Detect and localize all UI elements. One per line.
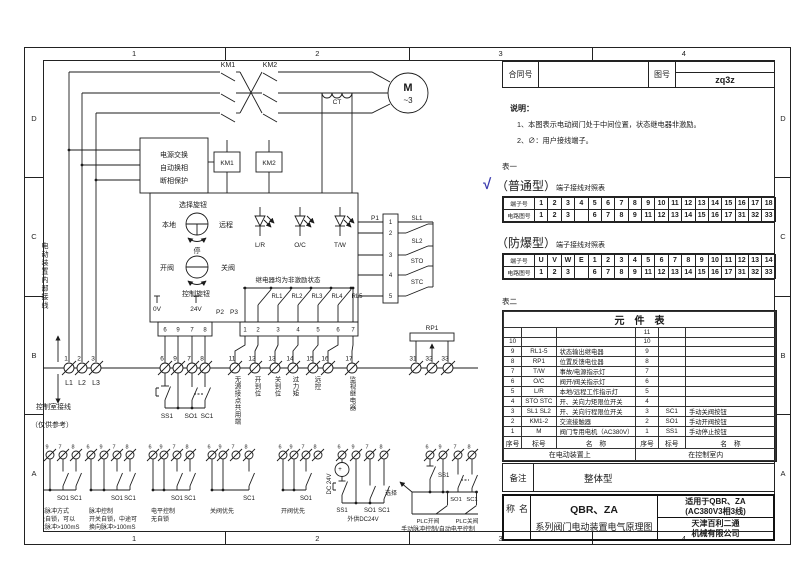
terminal: 16 (321, 356, 335, 376)
term-cell: 7 (601, 210, 614, 222)
schematic-label: 7 (301, 445, 304, 451)
km1-coil-label: KM1 (220, 160, 234, 167)
schematic-label: 1 (64, 356, 68, 363)
schematic-label: 32 (425, 356, 433, 363)
schematic-label: 6 (163, 328, 167, 334)
component-header-cell: 名 称 (556, 437, 636, 449)
term-cell: 15 (695, 210, 708, 222)
terminal: 7 (171, 445, 183, 462)
terminal: 6 (206, 445, 218, 462)
schematic-label: SO1 (300, 496, 313, 502)
term-row-label: 电路图号 (504, 210, 535, 222)
schematic-label: 9 (289, 445, 292, 451)
selector-knob-title: 选择旋钮 (179, 200, 207, 209)
schematic-label: 7 (112, 445, 115, 451)
drawing-no-label: 图号 (649, 62, 676, 87)
term-cell: 6 (601, 198, 614, 210)
component-header-cell: 序号 (636, 437, 658, 449)
schematic-label: SL1 (411, 215, 423, 222)
terminal: 8 (70, 445, 82, 462)
terminal: 9 (437, 445, 449, 462)
component-row: 11 (504, 328, 776, 338)
zone-label: A (25, 414, 43, 532)
drawing-no-blank (676, 62, 774, 73)
term-cell: 6 (655, 255, 668, 267)
name-label: 名称 (504, 496, 531, 539)
component-cell: 本地/远程工作指示灯 (556, 387, 636, 397)
schematic-label: 6 (86, 445, 89, 451)
schematic-label: 7 (172, 445, 175, 451)
schematic-label: 脉冲控制 (89, 507, 113, 515)
term-cell: 10 (708, 255, 721, 267)
term-cell: 1 (588, 255, 601, 267)
term-cell: 12 (735, 255, 748, 267)
component-cell: 6 (636, 377, 658, 387)
zero-volt-label: 0V (153, 306, 162, 313)
normal-type-subtitle: 端子接线对照表 (556, 185, 605, 192)
schematic-label: 7 (231, 445, 234, 451)
term-cell: E (575, 255, 588, 267)
term-cell: 14 (762, 255, 776, 267)
zone-label: C (775, 177, 791, 295)
schematic-label: 8 (185, 445, 188, 451)
schematic-label: 13 (268, 356, 276, 363)
schematic-label: 1 (389, 220, 393, 226)
contract-table: 合同号 图号 zq3z (502, 61, 775, 88)
schematic-label: + (338, 467, 342, 473)
term-cell: 11 (642, 267, 655, 279)
term-cell: 15 (722, 198, 735, 210)
term-cell: 12 (682, 198, 695, 210)
schematic-label: 开阀优先 (281, 507, 305, 515)
schematic-label: 开关自锁，可以 (43, 515, 75, 523)
schematic-label: SL2 (411, 238, 423, 245)
drawing-no-value: zq3z (676, 73, 774, 87)
table2-label: 表二 (502, 296, 517, 307)
schematic-label: SO1 (450, 497, 462, 503)
reference-only-label: （仅供参考） (31, 420, 73, 430)
component-cell: STO STC (522, 397, 556, 407)
component-cell (685, 337, 775, 347)
footer-left: 在电动装置上 (504, 449, 636, 461)
schematic-label: L1 (65, 380, 73, 387)
term-cell: 32 (749, 210, 762, 222)
relay-note: 继电器均为非激励状态 (256, 275, 322, 284)
component-cell (685, 387, 775, 397)
component-cell: 1 (636, 427, 658, 437)
schematic-label: 3 (276, 328, 280, 334)
power-box-line1: 电源交换 (160, 150, 188, 159)
schematic-label: RL2 (291, 294, 303, 300)
note-2: 2、∅：用户接线端子。 (517, 136, 772, 146)
term-cell: 16 (735, 198, 748, 210)
schematic-label: 7 (187, 356, 191, 363)
schematic-label: 外供DC24V (347, 515, 378, 523)
schematic-label: PLC关阀 (456, 517, 479, 525)
term-cell: 9 (642, 198, 655, 210)
zone-label: B (775, 296, 791, 414)
term-cell: 32 (749, 267, 762, 279)
term-cell: 1 (535, 210, 548, 222)
term-cell: 8 (682, 255, 695, 267)
term-cell: 15 (695, 267, 708, 279)
component-row: 5L/R本地/远程工作指示灯5 (504, 387, 776, 397)
term-cell: 1 (535, 267, 548, 279)
schematic-label: 16 (321, 356, 329, 363)
term-row-label: 端子号 (504, 198, 535, 210)
schematic-label: 7 (453, 445, 456, 451)
term-cell: W (561, 255, 574, 267)
component-cell: 手动停止按钮 (685, 427, 775, 437)
dc24v-label: DC 24V (327, 473, 333, 494)
term-cell: 12 (655, 210, 668, 222)
component-cell: 5 (636, 387, 658, 397)
component-table: 元 件 表1110109RL1-5状态输出继电器98RP1位置反馈电位器87T/… (502, 310, 777, 462)
term-cell: 13 (668, 267, 681, 279)
component-cell: 位置反馈电位器 (556, 357, 636, 367)
component-cell: 事故/电源指示灯 (556, 367, 636, 377)
component-header-cell: 名 称 (685, 437, 775, 449)
remote-label: 远程 (219, 220, 233, 229)
normal-terminal-table: 端子号123456789101112131415161718电路图号123678… (502, 196, 775, 223)
schematic-label: SS1 (336, 508, 348, 514)
notes-title: 说明： (510, 103, 772, 114)
term-cell: 10 (655, 198, 668, 210)
component-cell (658, 377, 685, 387)
component-cell: 9 (636, 347, 658, 357)
term-row-label: 端子号 (504, 255, 535, 267)
schematic-label: SO1 (364, 508, 377, 514)
company-line1: 天津百利二通 (692, 519, 740, 529)
schematic-label: RL5 (351, 294, 363, 300)
terminal: 33 (441, 356, 455, 376)
schematic-label: 换向脉冲>100mS (89, 523, 136, 531)
component-table-title: 元 件 表 (504, 312, 776, 328)
schematic-label: 9 (99, 445, 102, 451)
term-cell: 4 (575, 198, 588, 210)
schematic-label: 8 (203, 328, 207, 334)
schematic-label: 33 (441, 356, 449, 363)
schematic-label: SO1 (111, 496, 124, 502)
schematic-label: SC1 (70, 496, 82, 502)
term-cell: 11 (722, 255, 735, 267)
normal-type-title: （普通型） (496, 179, 556, 193)
schematic-label: 8 (313, 445, 316, 451)
schematic-label: RL3 (311, 294, 323, 300)
remark-row: 备注 整体型 (502, 463, 775, 492)
term-cell: 4 (628, 255, 641, 267)
schematic-label: 7 (351, 328, 355, 334)
schematic-label: 9 (45, 445, 48, 451)
schematic-label: 2 (389, 231, 393, 237)
component-cell: 8 (636, 357, 658, 367)
component-cell (658, 328, 685, 338)
component-cell: 3 (504, 407, 522, 417)
terminal: 31 (409, 356, 423, 376)
component-cell: 阀门专用电机（AC380V） (556, 427, 636, 437)
term-cell: 5 (642, 255, 655, 267)
component-row: 2KM1-2交流接触器2SO1手动开阀按钮 (504, 417, 776, 427)
open-valve-label: 开阀 (160, 263, 174, 272)
component-cell: SO1 (658, 417, 685, 427)
km2-label: KM2 (263, 62, 278, 69)
component-cell: 状态输出继电器 (556, 347, 636, 357)
component-cell: T/W (522, 367, 556, 377)
term-cell: 6 (588, 210, 601, 222)
component-cell: 7 (636, 367, 658, 377)
term-cell: 2 (548, 198, 561, 210)
motor-label: M (403, 82, 412, 94)
schematic-label: 8 (379, 445, 382, 451)
motor-phase-label: ~3 (403, 96, 413, 105)
component-cell (522, 328, 556, 338)
km1-label: KM1 (221, 62, 236, 69)
terminal: 6 (424, 445, 436, 462)
zone-label: 1 (43, 47, 225, 60)
component-cell: RP1 (522, 357, 556, 367)
term-cell: 7 (615, 198, 628, 210)
apply-line1: 适用于QBR、ZA (685, 497, 745, 507)
component-cell: 阀开/阀关指示灯 (556, 377, 636, 387)
terminal: 9 (98, 445, 110, 462)
schematic-label: 6 (160, 356, 164, 363)
component-row: 6O/C阀开/阀关指示灯6 (504, 377, 776, 387)
component-cell (658, 337, 685, 347)
terminal: 9 (217, 445, 229, 462)
component-cell (556, 337, 636, 347)
term-cell: 3 (561, 267, 574, 279)
schematic-label: SC1 (243, 496, 255, 502)
component-cell: 5 (504, 387, 522, 397)
term-cell: 33 (762, 267, 776, 279)
terminal: 8 (124, 445, 136, 462)
schematic-label: 2 (77, 356, 81, 363)
schematic-label: 开关自锁，中途可 (89, 515, 137, 523)
terminal: 7 (57, 445, 69, 462)
schematic-label: 8 (125, 445, 128, 451)
component-cell: L/R (522, 387, 556, 397)
schematic-label: 5 (316, 328, 320, 334)
schematic-label: SC1 (466, 497, 477, 503)
schematic-label: 8 (467, 445, 470, 451)
zone-label: 4 (592, 47, 775, 60)
schematic-label: 停止脉冲>100mS (43, 523, 80, 531)
term-cell: 13 (695, 198, 708, 210)
schematic-label: 6 (425, 445, 428, 451)
schematic-label: 8 (71, 445, 74, 451)
terminal: 15 (306, 356, 320, 376)
schematic-label: 12 (248, 356, 256, 363)
schematic-label: STO (411, 258, 424, 265)
term-cell: 13 (749, 255, 762, 267)
schematic-label: 9 (351, 445, 354, 451)
component-row: 1M阀门专用电机（AC380V）1SS1手动停止按钮 (504, 427, 776, 437)
schematic-label: 电平控制 (151, 507, 175, 515)
schematic-label: 7 (58, 445, 61, 451)
schematic-label: RL4 (331, 294, 343, 300)
terminal: 8 (312, 445, 324, 462)
p1-label: P1 (371, 215, 379, 222)
so1-label: SO1 (184, 413, 197, 420)
component-row: 8RP1位置反馈电位器8 (504, 357, 776, 367)
component-cell: 开、关向行程限位开关 (556, 407, 636, 417)
schematic-label: 17 (345, 356, 353, 363)
zone-strip-top: 1234 (43, 47, 775, 60)
schematic-label: 选择 (385, 489, 397, 497)
component-cell (658, 357, 685, 367)
component-header-cell: 标号 (522, 437, 556, 449)
schematic-label: 4 (389, 273, 393, 279)
term-cell: 3 (561, 198, 574, 210)
exproof-type-heading: （防爆型）端子接线对照表 (496, 234, 605, 252)
led-oc-icon (295, 207, 314, 236)
term-cell (575, 210, 588, 222)
schematic-label: 1 (243, 328, 247, 334)
term-cell: 5 (588, 198, 601, 210)
remark-value: 整体型 (534, 464, 774, 491)
zone-label: D (25, 60, 43, 177)
contract-value (539, 62, 649, 87)
term-cell: 7 (668, 255, 681, 267)
p2-label: P2 (216, 309, 224, 316)
component-cell: 2 (504, 417, 522, 427)
terminal: 9 (288, 445, 300, 462)
ss1-label: SS1 (161, 413, 174, 420)
zone-label: 3 (409, 47, 592, 60)
signal-terminal-label: 远控 (312, 376, 321, 390)
sc1-label: SC1 (201, 413, 214, 420)
schematic-label: 6 (337, 445, 340, 451)
component-cell (522, 337, 556, 347)
terminal: 7 (230, 445, 242, 462)
component-cell (556, 328, 636, 338)
terminal: 8 (184, 445, 196, 462)
schematic-label: 6 (207, 445, 210, 451)
component-cell: 1 (504, 427, 522, 437)
close-valve-label: 关阀 (221, 263, 235, 272)
schematic-label: SO1 (171, 496, 184, 502)
component-row: 1010 (504, 337, 776, 347)
term-cell: 8 (615, 267, 628, 279)
term-cell: 14 (682, 210, 695, 222)
component-cell: 11 (636, 328, 658, 338)
schematic-label: 6 (336, 328, 340, 334)
terminal: 12 (248, 356, 262, 376)
normal-type-heading: （普通型）端子接线对照表 (496, 177, 605, 195)
term-cell: 11 (642, 210, 655, 222)
term-cell: 1 (535, 198, 548, 210)
schematic-label: 6 (148, 445, 151, 451)
schematic-label: 8 (200, 356, 204, 363)
schematic-label: 手动脉冲控制/自动电平控制 (401, 525, 475, 532)
terminal: 6 (277, 445, 289, 462)
component-cell: 4 (504, 397, 522, 407)
zone-label: D (775, 60, 791, 177)
schematic-label: 3 (389, 253, 393, 259)
schematic-label: 6 (278, 445, 281, 451)
term-cell: 18 (762, 198, 776, 210)
term-cell: 17 (722, 267, 735, 279)
schematic-label: SC1 (184, 496, 196, 502)
component-cell: M (522, 427, 556, 437)
signal-terminal-label: 监视继电器 (347, 376, 356, 411)
term-cell: 16 (708, 210, 721, 222)
control-unit-box (150, 193, 358, 322)
component-cell (658, 387, 685, 397)
terminal: 13 (268, 356, 282, 376)
component-row: 4STO STC开、关向力矩限位开关4 (504, 397, 776, 407)
component-cell (685, 367, 775, 377)
schematic-label: 9 (218, 445, 221, 451)
schematic-label: 7 (365, 445, 368, 451)
zone-strip-right: DCBA (775, 60, 791, 532)
power-box-line3: 断相保护 (160, 176, 188, 185)
zone-label: 2 (225, 47, 408, 60)
terminal: 14 (286, 356, 300, 376)
control-knob-title: 控制旋钮 (182, 289, 210, 298)
component-cell (658, 347, 685, 357)
component-cell: O/C (522, 377, 556, 387)
signal-terminal-label: 无源接点共用端 (232, 376, 241, 425)
terminal: 9 (44, 445, 56, 462)
schematic-label: 3 (91, 356, 95, 363)
terminal: 9 (158, 445, 170, 462)
component-header-cell: 序号 (504, 437, 522, 449)
component-cell: SL1 SL2 (522, 407, 556, 417)
led-lr-icon (255, 207, 274, 236)
component-cell: 7 (504, 367, 522, 377)
terminal: 8 (243, 445, 255, 462)
schematic-label: 7 (190, 328, 194, 334)
schematic-label: 14 (286, 356, 294, 363)
schematic-label: 9 (159, 445, 162, 451)
schematic-label: PLC开阀 (417, 517, 440, 525)
term-cell: 2 (601, 255, 614, 267)
terminal: 32 (425, 356, 439, 376)
term-cell: 6 (588, 267, 601, 279)
term-cell: 11 (668, 198, 681, 210)
component-row: 7T/W事故/电源指示灯7 (504, 367, 776, 377)
product-name: QBR、ZA (570, 502, 618, 517)
terminal: 11 (228, 356, 242, 376)
circuit-schematic: KM1 KM2 M ~3 CT 电源交换 自动换相 断相保护 KM1 KM2 选… (43, 60, 490, 532)
zone-label: 1 (43, 532, 225, 545)
term-cell: 9 (695, 255, 708, 267)
component-cell: 9 (504, 347, 522, 357)
component-cell: 10 (504, 337, 522, 347)
term-cell: 31 (735, 210, 748, 222)
schematic-label: 15 (306, 356, 314, 363)
p3-label: P3 (230, 309, 238, 316)
signal-terminal-label: 过力矩 (290, 376, 299, 397)
component-cell: 手动关阀按钮 (685, 407, 775, 417)
schematic-label: SS1 (438, 473, 450, 479)
terminal: 6 (85, 445, 97, 462)
term-cell: 7 (601, 267, 614, 279)
terminal: 9 (350, 445, 362, 462)
term-cell: 3 (615, 255, 628, 267)
term-cell: 16 (708, 267, 721, 279)
note-1: 1、本图表示电动阀门处于中间位置，状态继电器非激励。 (517, 120, 772, 130)
power-box-line2: 自动换相 (160, 163, 188, 172)
schematic-label: L3 (92, 380, 100, 387)
term-row-label: 电路图号 (504, 267, 535, 279)
signal-terminal-label: 开到位 (252, 376, 261, 397)
term-cell: 2 (548, 267, 561, 279)
component-row: 3SL1 SL2开、关向行程限位开关3SC1手动关阀按钮 (504, 407, 776, 417)
local-label: 本地 (162, 220, 176, 229)
km2-coil-label: KM2 (262, 160, 276, 167)
